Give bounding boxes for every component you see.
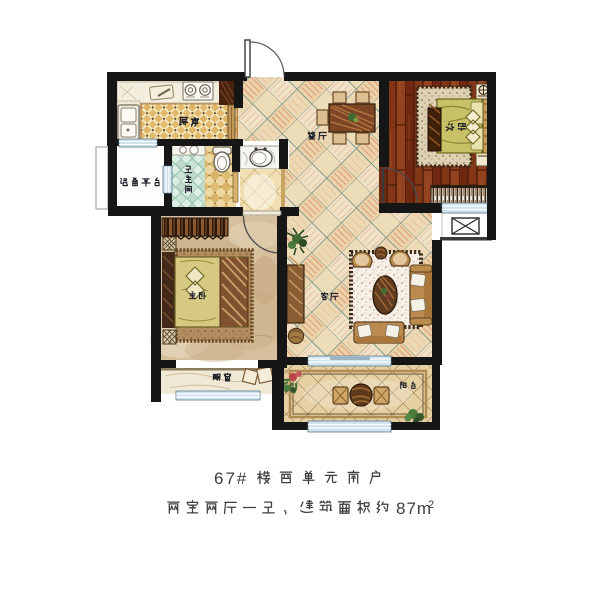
svg-text:2: 2 (428, 499, 434, 511)
svg-text:67#: 67# (214, 469, 248, 488)
svg-text:87m: 87m (396, 499, 432, 518)
